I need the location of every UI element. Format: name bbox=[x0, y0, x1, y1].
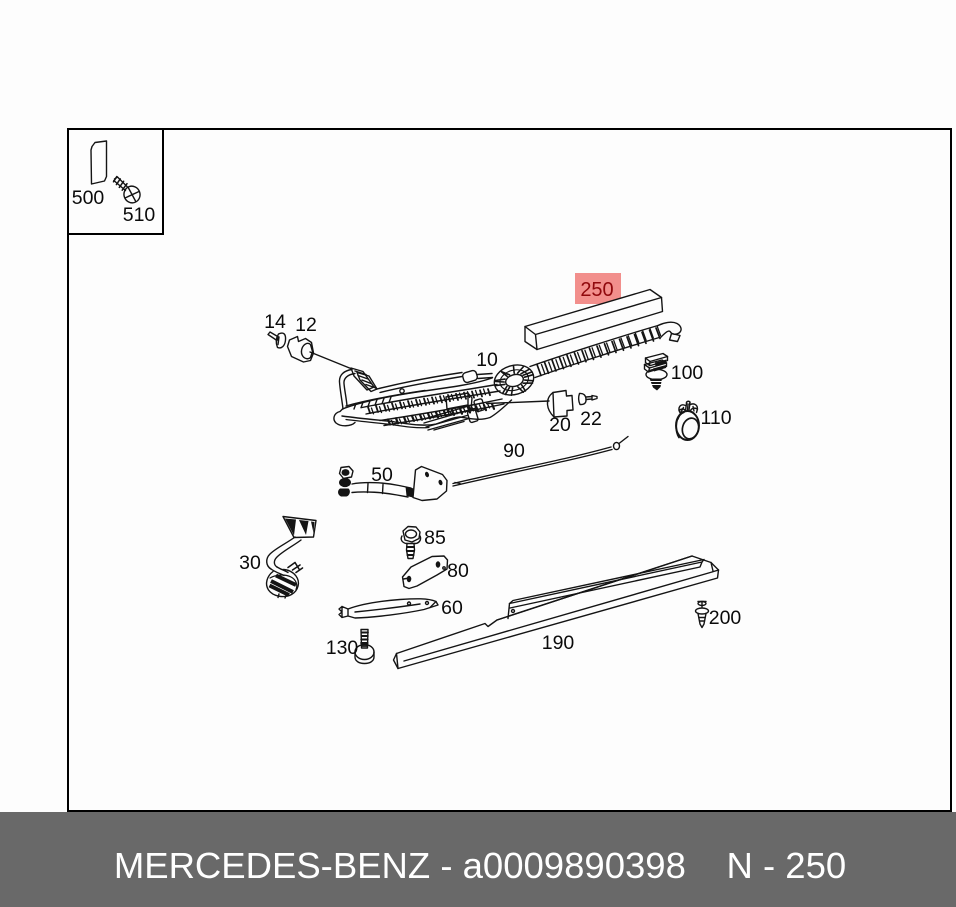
svg-text:20: 20 bbox=[549, 414, 571, 436]
svg-text:500: 500 bbox=[72, 187, 105, 209]
svg-text:250: 250 bbox=[580, 279, 613, 301]
svg-text:110: 110 bbox=[700, 407, 731, 429]
svg-text:14: 14 bbox=[264, 311, 286, 333]
svg-text:100: 100 bbox=[671, 362, 704, 384]
svg-text:60: 60 bbox=[441, 597, 463, 619]
svg-text:90: 90 bbox=[503, 440, 525, 462]
svg-text:MERCEDES-BENZ - a0009890398: MERCEDES-BENZ - a0009890398 N - 250 bbox=[114, 845, 846, 886]
svg-text:200: 200 bbox=[709, 607, 742, 629]
svg-text:190: 190 bbox=[542, 632, 575, 654]
svg-text:22: 22 bbox=[580, 408, 602, 430]
svg-text:50: 50 bbox=[371, 464, 393, 486]
svg-text:80: 80 bbox=[447, 560, 469, 582]
svg-text:85: 85 bbox=[424, 527, 446, 549]
svg-text:30: 30 bbox=[239, 552, 261, 574]
svg-text:510: 510 bbox=[123, 204, 156, 226]
svg-text:12: 12 bbox=[295, 314, 317, 336]
svg-text:10: 10 bbox=[476, 349, 498, 371]
svg-text:130: 130 bbox=[326, 637, 359, 659]
